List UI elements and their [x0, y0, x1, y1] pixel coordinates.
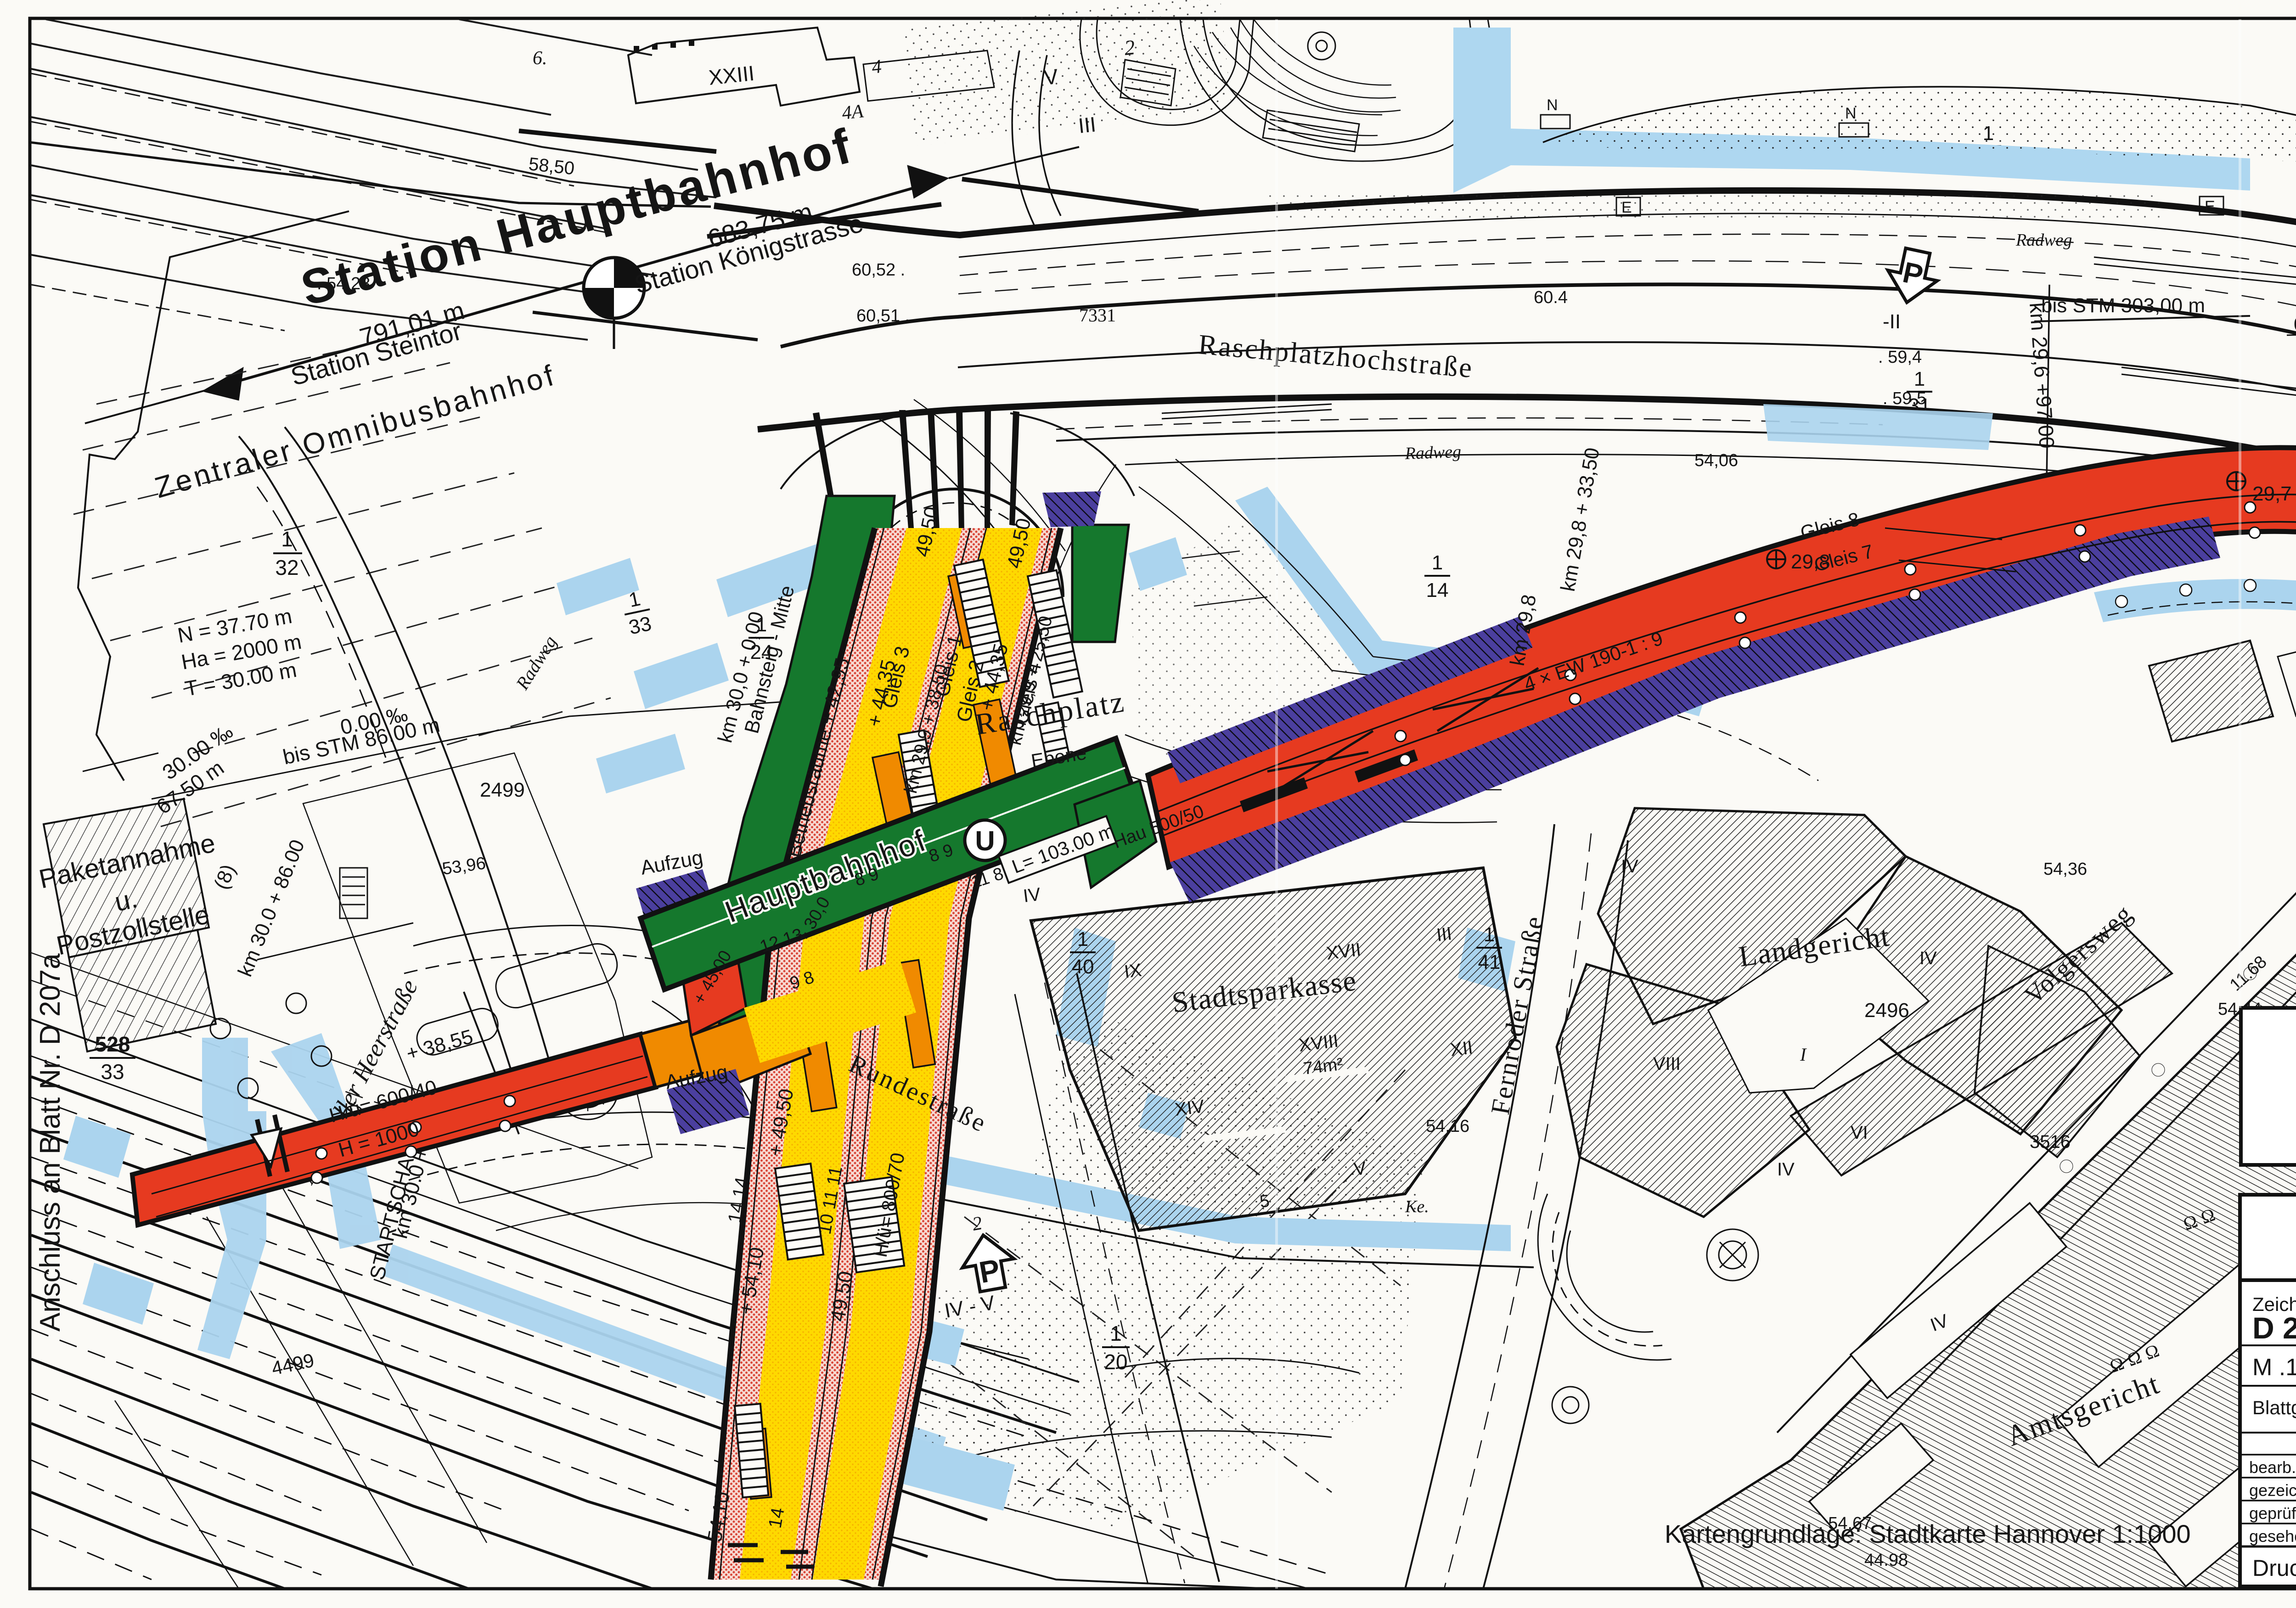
- svg-text:XXIII: XXIII: [708, 61, 756, 90]
- svg-text:gesehen: gesehen: [2249, 1527, 2296, 1546]
- svg-text:Ke.: Ke.: [1405, 1197, 1429, 1216]
- svg-text:14: 14: [765, 1506, 788, 1529]
- svg-text:-II: -II: [1883, 310, 1901, 333]
- svg-text:Radweg: Radweg: [1404, 442, 1462, 463]
- svg-text:60,51 .: 60,51 .: [856, 306, 910, 326]
- svg-text:1: 1: [1914, 368, 1925, 390]
- svg-text:IV: IV: [1621, 856, 1638, 877]
- svg-text:3516: 3516: [2030, 1132, 2071, 1152]
- svg-text:XII: XII: [1449, 1037, 1474, 1060]
- svg-text:Blattgr.: Blattgr.: [2252, 1397, 2296, 1418]
- svg-text:2499: 2499: [480, 779, 525, 801]
- svg-text:60,52 .: 60,52 .: [852, 260, 905, 280]
- svg-text:44.98: 44.98: [1864, 1551, 1908, 1570]
- svg-text:32: 32: [275, 556, 298, 579]
- svg-text:XVII: XVII: [1325, 939, 1362, 964]
- svg-text:54,16: 54,16: [1426, 1117, 1469, 1136]
- svg-text:2496: 2496: [1864, 999, 1909, 1022]
- svg-text:Anschluss an Blatt Nr. D 207a: Anschluss an Blatt Nr. D 207a: [34, 953, 66, 1332]
- svg-text:IV: IV: [1777, 1159, 1795, 1180]
- svg-text:I: I: [1800, 1044, 1807, 1065]
- svg-text:1: 1: [1110, 1321, 1122, 1345]
- svg-text:29,7: 29,7: [2252, 483, 2292, 505]
- svg-text:V: V: [1353, 1158, 1367, 1180]
- svg-text:IX: IX: [1123, 960, 1143, 982]
- svg-text:528: 528: [95, 1032, 130, 1056]
- svg-text:bearb.: bearb.: [2249, 1458, 2296, 1477]
- svg-text:60.4: 60.4: [1534, 288, 1568, 307]
- svg-text:4A: 4A: [841, 101, 865, 124]
- svg-text:14: 14: [1426, 579, 1449, 602]
- svg-text:VIII: VIII: [1653, 1054, 1681, 1074]
- svg-text:20: 20: [1104, 1350, 1127, 1374]
- svg-text:M .1 : 1000: M .1 : 1000: [2252, 1354, 2296, 1381]
- svg-text:IV: IV: [1919, 948, 1937, 968]
- svg-text:54,06: 54,06: [1694, 451, 1738, 470]
- svg-text:0,00 ‰: 0,00 ‰: [2294, 313, 2296, 335]
- svg-text:. 59,4: . 59,4: [1878, 348, 1922, 367]
- svg-text:III: III: [1077, 112, 1097, 138]
- svg-text:D 207/ 134: D 207/ 134: [2252, 1311, 2296, 1345]
- svg-text:XIV: XIV: [1174, 1096, 1206, 1120]
- svg-text:III: III: [1435, 923, 1453, 945]
- svg-text:33: 33: [627, 612, 653, 639]
- svg-text:E: E: [1621, 199, 1632, 216]
- svg-text:N: N: [1547, 96, 1558, 114]
- svg-text:geprüft: geprüft: [2249, 1504, 2296, 1523]
- svg-text:29,8: 29,8: [1791, 551, 1830, 573]
- svg-text:U: U: [975, 826, 995, 856]
- svg-text:gezeichn.: gezeichn.: [2249, 1481, 2296, 1500]
- svg-text:7331: 7331: [1079, 305, 1116, 326]
- svg-text:1: 1: [281, 527, 293, 551]
- svg-text:E: E: [2205, 198, 2215, 215]
- svg-text:6.: 6.: [533, 48, 547, 69]
- svg-text:bis STM 303,00 m: bis STM 303,00 m: [2041, 294, 2205, 317]
- svg-text:1: 1: [1432, 551, 1443, 574]
- svg-text:Radweg: Radweg: [2015, 231, 2072, 250]
- svg-text:V: V: [1043, 64, 1059, 90]
- svg-text:Kartengrundlage: Stadtkarte Ha: Kartengrundlage: Stadtkarte Hannover 1:1…: [1665, 1519, 2191, 1548]
- svg-text:Druck : Stadtvermessungsamt: Druck : Stadtvermessungsamt: [2252, 1555, 2296, 1581]
- svg-text:N: N: [1845, 105, 1857, 122]
- svg-text:33: 33: [101, 1060, 124, 1084]
- svg-text:IV: IV: [1022, 884, 1042, 906]
- svg-text:54,36: 54,36: [2043, 860, 2087, 879]
- svg-text:. 54,28: . 54,28: [317, 274, 370, 293]
